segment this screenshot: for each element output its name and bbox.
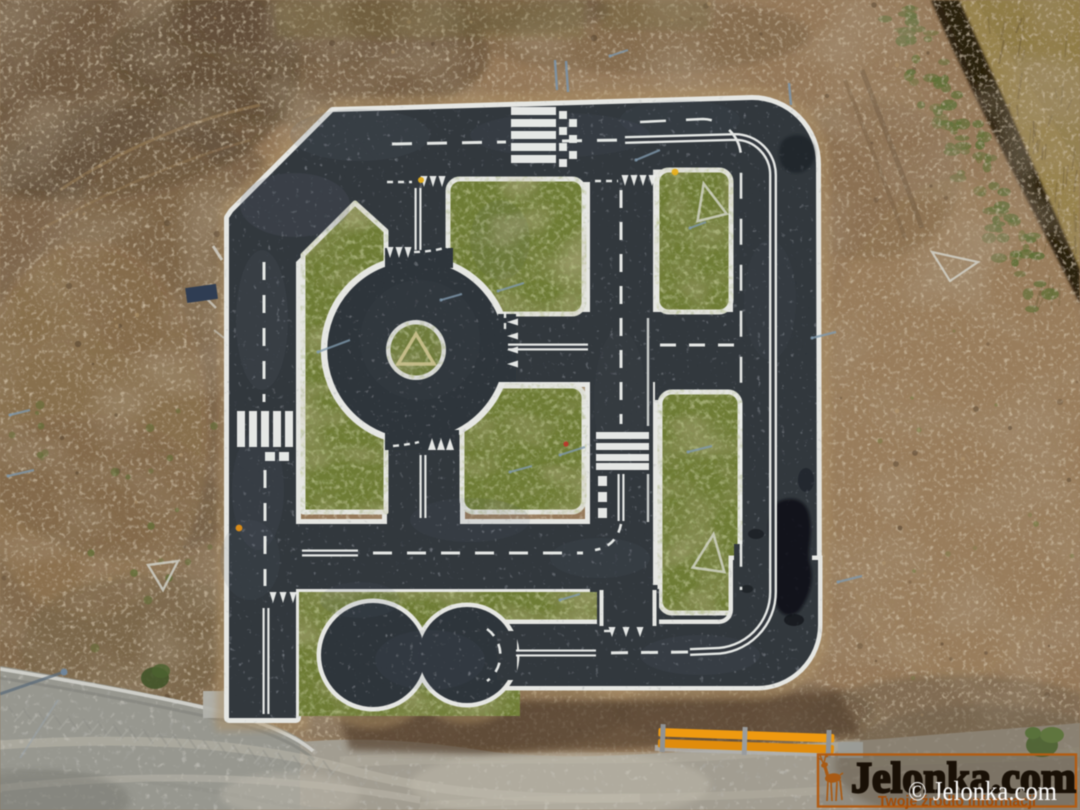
- svg-text:© Jelonka.com: © Jelonka.com: [908, 775, 1057, 806]
